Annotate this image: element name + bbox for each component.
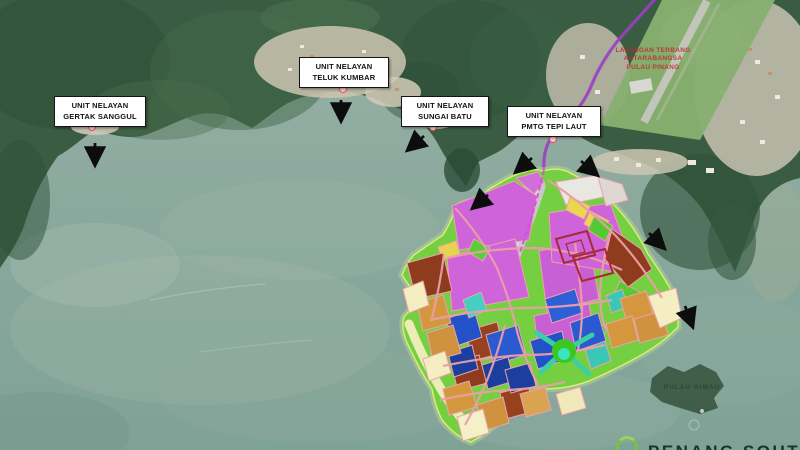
map-canvas: UNIT NELAYAN GERTAK SANGGUL UNIT NELAYAN…	[0, 0, 800, 450]
label-line: PMTG TEPI LAUT	[510, 121, 598, 132]
watermark-text: PENANG SOUTH	[648, 442, 800, 450]
label-line: SUNGAI BATU	[404, 111, 486, 122]
label-unit-nelayan-pmtg-tepi-laut: UNIT NELAYAN PMTG TEPI LAUT	[507, 106, 601, 137]
label-unit-nelayan-sungai-batu: UNIT NELAYAN SUNGAI BATU	[401, 96, 489, 127]
label-pulau-rimau: PULAU RIMAU	[662, 383, 722, 392]
label-unit-nelayan-teluk-kumbar: UNIT NELAYAN TELUK KUMBAR	[299, 57, 389, 88]
label-line: GERTAK SANGGUL	[57, 111, 143, 122]
label-line: UNIT NELAYAN	[510, 110, 598, 121]
label-line: UNIT NELAYAN	[57, 100, 143, 111]
label-line: ANTARABANGSA	[610, 55, 696, 63]
label-line: PULAU PINANG	[610, 64, 696, 72]
label-line: LAPANGAN TERBANG	[610, 47, 696, 55]
label-airport: LAPANGAN TERBANG ANTARABANGSA PULAU PINA…	[610, 47, 696, 72]
label-line: TELUK KUMBAR	[302, 72, 386, 83]
label-unit-nelayan-gertak-sanggul: UNIT NELAYAN GERTAK SANGGUL	[54, 96, 146, 127]
label-line: UNIT NELAYAN	[404, 100, 486, 111]
label-line: UNIT NELAYAN	[302, 61, 386, 72]
